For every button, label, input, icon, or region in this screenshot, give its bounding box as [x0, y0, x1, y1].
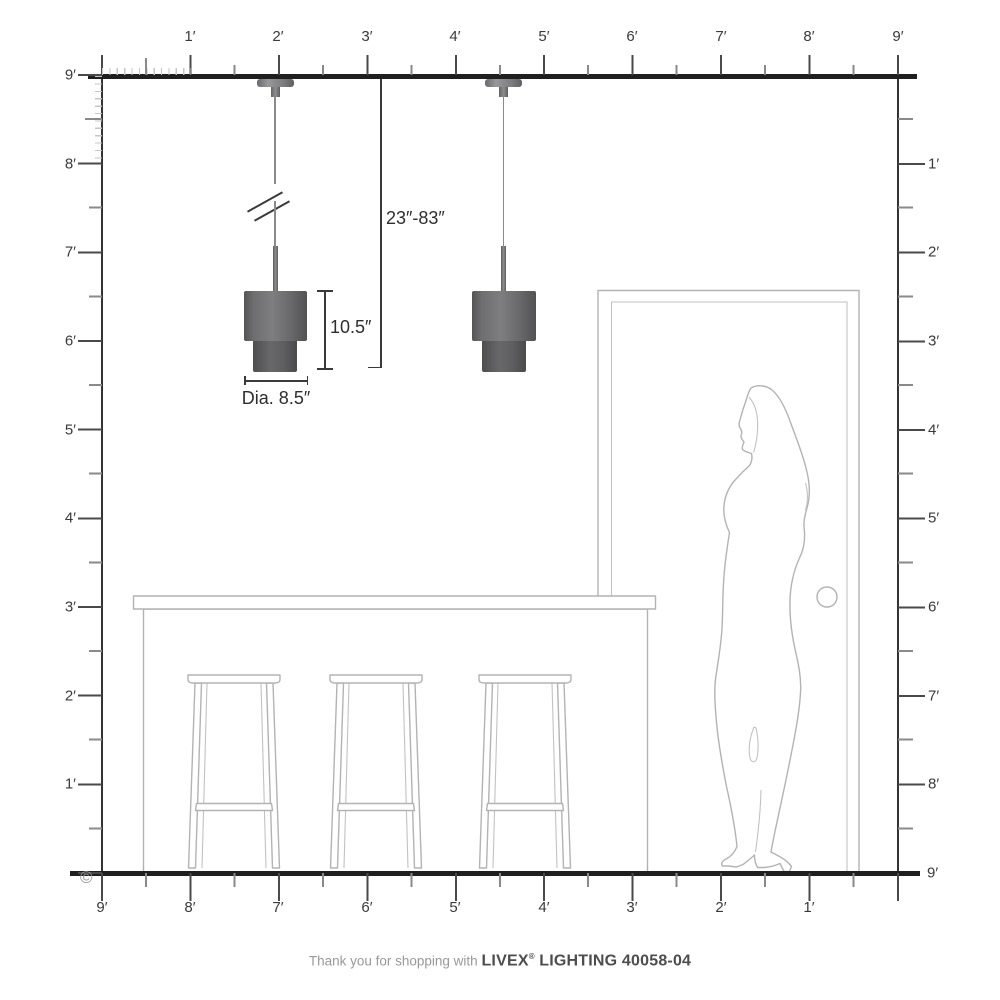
footer-product: LIGHTING 40058-04 [535, 952, 692, 969]
height-dimension-line [324, 290, 326, 369]
right-ruler-label: 5′ [928, 510, 939, 527]
hanging-wire [503, 96, 505, 246]
fixture-diameter-label: Dia. 8.5″ [242, 388, 310, 409]
hanging-wire [274, 96, 276, 184]
bottom-ruler-label: 3′ [626, 899, 637, 916]
left-ruler-label: 2′ [65, 688, 76, 705]
scale-diagram: 23″-83″ 10.5″ Dia. 8.5″ 1′ 2′ 3′ 4′ 5′ 6… [0, 0, 1000, 1000]
bottom-ruler-minor-ticks [145, 873, 855, 887]
bar-counter [134, 596, 656, 873]
footer: Thank you for shopping with LIVEX® LIGHT… [0, 952, 1000, 970]
right-ruler-label: 7′ [928, 688, 939, 705]
footer-brand: LIVEX [481, 952, 528, 969]
left-ruler-label: 8′ [65, 156, 76, 173]
stem-rod [501, 246, 506, 292]
counter-top [134, 596, 656, 609]
left-ruler-label: 6′ [65, 333, 76, 350]
right-ruler-label: 6′ [928, 599, 939, 616]
left-ruler-label: 4′ [65, 510, 76, 527]
dimension-cap [244, 376, 246, 385]
ceiling-canopy [257, 79, 294, 87]
footer-thanks-text: Thank you for shopping with [309, 953, 482, 968]
bottom-ruler-label: 9′ [96, 899, 107, 916]
door-knob [817, 587, 837, 607]
right-ruler-label: 2′ [928, 244, 939, 261]
shade-upper-drum [244, 291, 307, 341]
drop-range-label: 23″-83″ [386, 208, 445, 229]
left-ruler-label: 7′ [65, 244, 76, 261]
left-ruler-label: 1′ [65, 776, 76, 793]
canopy-neck [271, 87, 280, 97]
right-ruler-label: 3′ [928, 333, 939, 350]
bottom-ruler-label: 6′ [361, 899, 372, 916]
right-ruler-label: 4′ [928, 422, 939, 439]
bottom-ruler-label: 4′ [538, 899, 549, 916]
shade-upper-drum [472, 291, 536, 341]
top-ruler-label: 6′ [626, 28, 637, 45]
bottom-ruler-label: 8′ [184, 899, 195, 916]
dimension-cap [307, 376, 309, 385]
copyright-symbol: © [80, 868, 93, 888]
top-ruler-label: 5′ [538, 28, 549, 45]
scene-drawing [0, 0, 1000, 1000]
top-ruler-label: 8′ [803, 28, 814, 45]
counter-body [144, 609, 648, 873]
drop-dimension-line [380, 77, 382, 368]
dimension-cap [317, 290, 333, 292]
ceiling-canopy [485, 79, 522, 87]
top-ruler-label: 7′ [715, 28, 726, 45]
right-ruler-minor-ticks [898, 118, 913, 830]
left-ruler-half-foot-tick [85, 118, 102, 120]
bottom-ruler-label: 1′ [803, 899, 814, 916]
hanging-wire [274, 201, 276, 247]
fixture-height-label: 10.5″ [330, 317, 371, 338]
shade-lower-drum [253, 341, 297, 372]
dimension-cap [317, 368, 333, 370]
top-ruler-label: 3′ [361, 28, 372, 45]
top-ruler-minor-ticks [145, 65, 855, 75]
left-ruler-label: 9′ [65, 67, 76, 84]
top-ruler-half-foot-tick [145, 58, 147, 75]
diameter-dimension-line [244, 380, 308, 382]
dimension-cap [368, 367, 382, 369]
left-ruler-label: 5′ [65, 422, 76, 439]
right-ruler-label: 1′ [928, 156, 939, 173]
bottom-ruler-label: 7′ [272, 899, 283, 916]
left-ruler-minor-ticks [89, 118, 102, 830]
left-ruler-label: 3′ [65, 599, 76, 616]
top-ruler-label: 9′ [892, 28, 903, 45]
top-ruler-label: 1′ [184, 28, 195, 45]
bottom-ruler-label: 5′ [449, 899, 460, 916]
bottom-ruler-label: 2′ [715, 899, 726, 916]
top-ruler-label: 2′ [272, 28, 283, 45]
shade-lower-drum [482, 341, 526, 372]
floor-right-label: 9′ [927, 865, 938, 882]
stem-rod [273, 246, 278, 292]
top-ruler-label: 4′ [449, 28, 460, 45]
left-ruler-inch-ticks [95, 76, 102, 164]
right-ruler-label: 8′ [928, 776, 939, 793]
